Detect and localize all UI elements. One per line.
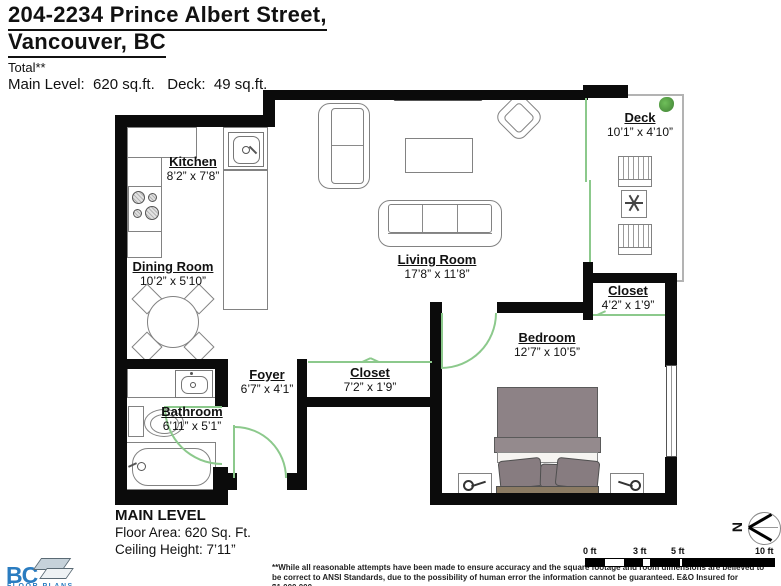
- room-name: Kitchen: [143, 154, 243, 169]
- sink-drain: [190, 382, 196, 388]
- slider-underlay: [582, 98, 594, 262]
- address-line-2: Vancouver, BC: [8, 29, 166, 58]
- wall-bedroom-bottom: [430, 493, 677, 505]
- room-dims: 4’2” x 1’9”: [588, 298, 668, 312]
- deck-chair: [618, 224, 652, 255]
- deck-chair-rail: [619, 247, 651, 254]
- room-label-bedroom: Bedroom 12’7” x 10’5”: [487, 330, 607, 359]
- entry-door-arc: [235, 426, 287, 478]
- deck-slider-panel-1: [585, 98, 587, 182]
- room-label-hall-closet: Closet 7’2” x 1’9”: [310, 365, 430, 394]
- scale-label-0: 0 ft: [583, 546, 597, 556]
- wall-deck-corner: [583, 85, 628, 98]
- wall-bedroom-top: [497, 302, 588, 313]
- room-label-kitchen: Kitchen 8’2” x 7’8”: [143, 154, 243, 183]
- floor-area: Floor Area: 620 Sq. Ft.: [115, 525, 251, 541]
- room-name: Living Room: [377, 252, 497, 267]
- room-label-foyer: Foyer 6’7” x 4’1”: [227, 367, 307, 396]
- address-line-1: 204-2234 Prince Albert Street,: [8, 2, 327, 31]
- room-name: Dining Room: [113, 259, 233, 274]
- compass-north-label: N: [729, 522, 745, 532]
- scale-label-5: 5 ft: [671, 546, 685, 556]
- stove-burner: [132, 191, 145, 204]
- hall-closet-door: [308, 361, 432, 363]
- room-label-deck: Deck 10’1” x 4’10”: [595, 110, 685, 139]
- lamp-arm: [471, 481, 486, 488]
- scale-segment: [624, 559, 643, 566]
- sofa: [378, 200, 502, 247]
- bedroom-closet-door: [593, 314, 665, 316]
- bed: [494, 387, 601, 495]
- room-dims: 10’1” x 4’10”: [595, 125, 685, 139]
- stove-burner: [148, 193, 157, 202]
- room-dims: 17’8” x 11’8”: [377, 267, 497, 281]
- deck-table: [621, 190, 647, 218]
- room-name: Bathroom: [142, 404, 242, 419]
- room-name: Bedroom: [487, 330, 607, 345]
- room-dims: 6’11” x 5’1”: [142, 419, 242, 433]
- disclaimer-line-2: be correct to ANSI Standards, due to the…: [272, 573, 778, 586]
- room-dims: 8’2” x 7’8”: [143, 169, 243, 183]
- wall-bedroom-closet-top: [588, 273, 670, 283]
- scale-bar-track: [585, 558, 775, 567]
- deck-chair: [618, 156, 652, 187]
- loveseat-cushions: [331, 108, 364, 184]
- wall-living-top: [263, 90, 588, 100]
- bedroom-window: [666, 365, 677, 457]
- floorplan-canvas: 204-2234 Prince Albert Street, Vancouver…: [0, 0, 781, 586]
- room-label-bathroom: Bathroom 6’11” x 5’1”: [142, 404, 242, 433]
- stove-burner: [133, 209, 142, 218]
- bc-floor-plans-logo: BC FLOOR PLANS: [4, 556, 134, 586]
- room-dims: 12’7” x 10’5”: [487, 345, 607, 359]
- wall-left-exterior: [115, 115, 127, 505]
- ceiling-height: Ceiling Height: 7’11”: [115, 542, 251, 558]
- room-dims: 10’2” x 5’10”: [113, 274, 233, 288]
- room-name: Closet: [310, 365, 430, 380]
- address-line-1-text: 204-2234 Prince Albert Street,: [8, 2, 327, 31]
- kitchen-peninsula-counter: [223, 170, 268, 310]
- stove: [128, 186, 162, 232]
- compass-icon: N: [731, 504, 781, 554]
- room-name: Closet: [588, 283, 668, 298]
- loveseat: [318, 103, 370, 189]
- room-name: Foyer: [227, 367, 307, 382]
- wall-hall-closet-bottom: [297, 397, 442, 407]
- window-mullion: [671, 366, 672, 456]
- bathtub-drain: [137, 462, 146, 471]
- bathroom-vanity: [127, 367, 216, 398]
- dining-table: [147, 296, 199, 348]
- address-line-2-text: Vancouver, BC: [8, 29, 166, 58]
- level-info: MAIN LEVEL Floor Area: 620 Sq. Ft. Ceili…: [115, 507, 251, 558]
- room-name: Deck: [595, 110, 685, 125]
- cushion-divider: [422, 205, 423, 232]
- logo-house-body: [39, 568, 74, 579]
- scale-segment: [586, 559, 605, 566]
- bed-duvet: [497, 387, 598, 438]
- coffee-table: [405, 138, 473, 173]
- level-title: MAIN LEVEL: [115, 507, 251, 525]
- scale-segment: [650, 559, 680, 566]
- scale-segment: [682, 559, 774, 566]
- deck-chair-rail: [619, 179, 651, 186]
- wall-bathroom-bottom: [115, 490, 220, 505]
- wall-foyer-bottom-right: [287, 473, 307, 490]
- scale-label-3: 3 ft: [633, 546, 647, 556]
- area-summary: Main Level: 620 sq.ft. Deck: 49 sq.ft.: [8, 76, 267, 93]
- room-dims: 7’2” x 1’9”: [310, 380, 430, 394]
- bathroom-sink: [175, 370, 213, 398]
- sink-faucet: [190, 372, 193, 375]
- room-label-dining-room: Dining Room 10’2” x 5’10”: [113, 259, 233, 288]
- room-label-living-room: Living Room 17’8” x 11’8”: [377, 252, 497, 281]
- bed-blanket-band: [494, 437, 601, 453]
- wall-kitchen-top: [115, 115, 275, 127]
- stove-burner: [145, 206, 159, 220]
- room-label-bedroom-closet: Closet 4’2” x 1’9”: [588, 283, 668, 312]
- sofa-cushions: [388, 204, 492, 233]
- cushion-divider: [332, 145, 363, 146]
- deck-slider-panel-2: [589, 180, 591, 262]
- room-dims: 6’7” x 4’1”: [227, 382, 307, 396]
- armchair: [491, 92, 548, 149]
- sofa-back-line: [388, 233, 492, 234]
- cushion-divider: [457, 205, 458, 232]
- total-label: Total**: [8, 60, 46, 75]
- wall-bathroom-top: [115, 359, 228, 369]
